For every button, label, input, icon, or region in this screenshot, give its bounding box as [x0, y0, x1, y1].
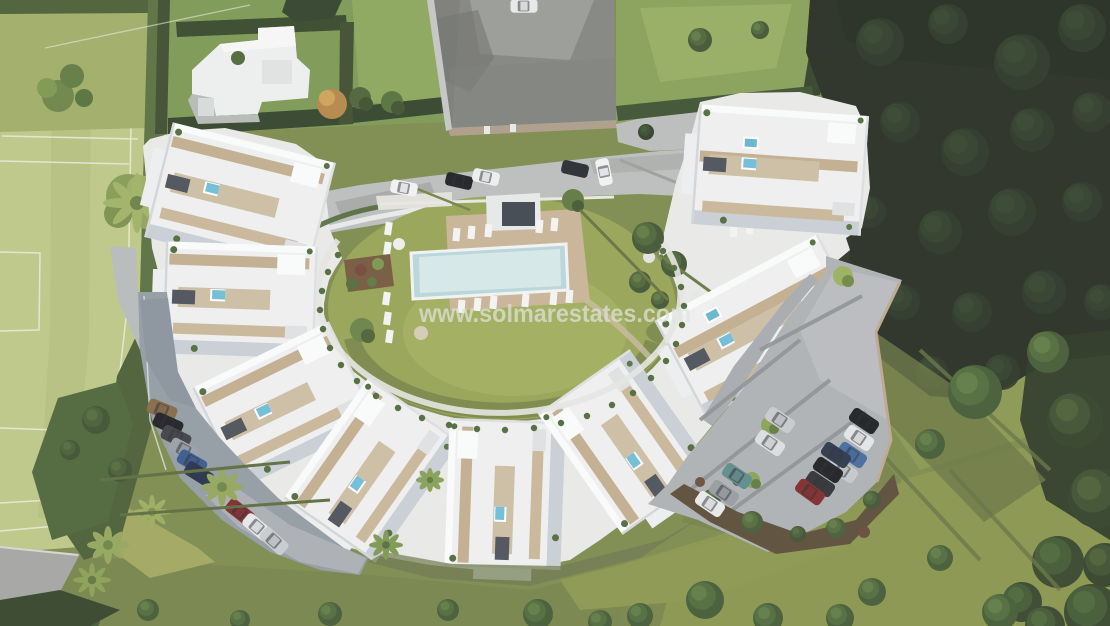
svg-text:www.solmarestates.com: www.solmarestates.com [418, 300, 691, 328]
